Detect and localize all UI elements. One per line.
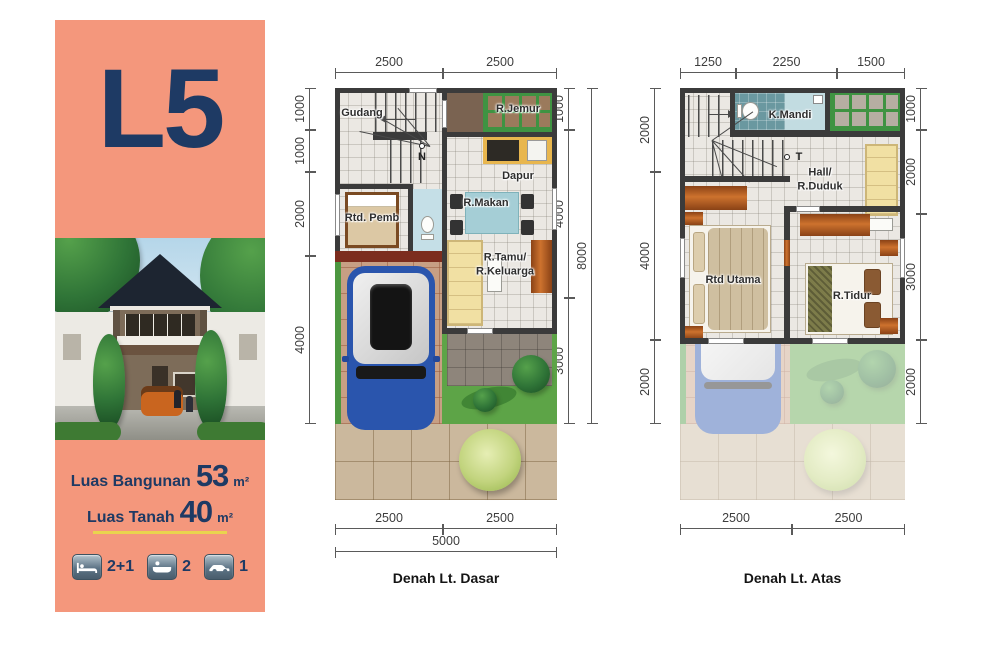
sink (527, 140, 547, 161)
dim-left: 4000 (309, 256, 310, 424)
dim-left: 1000 (309, 130, 310, 172)
spec-label: Luas Bangunan (71, 473, 191, 491)
window (409, 88, 437, 93)
divider (93, 531, 227, 534)
tree-icon (473, 388, 497, 412)
door-opening (467, 328, 493, 334)
unit-label: L5 (55, 42, 265, 176)
spec-luas-tanah: Luas Tanah 40 m² (55, 494, 265, 530)
t-marker-icon (784, 154, 790, 160)
window (552, 188, 557, 230)
door-panel (784, 240, 790, 266)
sink (813, 95, 823, 104)
window (680, 238, 685, 278)
nightstand (880, 240, 898, 256)
dim-top: 1250 (680, 72, 736, 73)
bedroom-count: 2+1 (107, 558, 134, 576)
dim-left: 2000 (654, 88, 655, 172)
room-label: R.Jemur (496, 102, 540, 116)
room-label: Dapur (502, 169, 534, 183)
spec-value: 53 (196, 458, 228, 494)
dim-left: 2000 (654, 340, 655, 424)
car-icon (204, 554, 234, 580)
toilet-icon (421, 216, 434, 233)
window (708, 338, 744, 344)
dim-left: 2000 (309, 172, 310, 256)
room-label: R.Makan (463, 196, 508, 210)
window (335, 194, 340, 236)
cabinet (531, 240, 552, 293)
nightstand (880, 318, 898, 334)
sidebar-panel: L5 Luas Ban (55, 20, 265, 612)
spec-unit: m² (233, 474, 249, 489)
bush-icon (459, 429, 521, 491)
balcony (830, 93, 900, 131)
dim-right: 2000 (920, 340, 921, 424)
brochure-page: L5 Luas Ban (0, 0, 984, 660)
upper-floor-plan: 1250 2250 1500 2000 4000 2000 1000 2000 … (680, 88, 905, 500)
feature-list: 2+1 2 1 (55, 554, 265, 580)
wardrobe (800, 214, 870, 236)
dim-bottom: 2500 (680, 528, 792, 529)
wardrobe (684, 186, 747, 210)
front-wall (335, 251, 442, 262)
ground-floor-plan: 2500 2500 1000 1000 2000 4000 1000 4000 … (335, 88, 557, 500)
dim-bottom: 2500 (792, 528, 905, 529)
bath-icon (147, 554, 177, 580)
dim-right: 4000 (568, 130, 569, 298)
plan-drawing: N (335, 88, 557, 500)
stairs (375, 93, 447, 132)
chair (521, 220, 534, 235)
plan-drawing: T (680, 88, 905, 500)
dim-left: 1000 (309, 88, 310, 130)
roof (98, 254, 222, 308)
spec-unit: m² (217, 510, 233, 525)
stair-arrow (385, 119, 415, 120)
person (186, 396, 193, 412)
window (900, 238, 905, 278)
room-label: Rtd. Pemb (345, 211, 399, 225)
service-floor (447, 93, 483, 132)
dim-right: 3000 (920, 214, 921, 340)
dim-right: 2000 (920, 130, 921, 214)
dim-right-total: 8000 (591, 88, 592, 424)
spec-value: 40 (180, 494, 212, 530)
dim-top: 2500 (335, 72, 443, 73)
coffee-table (869, 218, 893, 231)
door-opening (796, 206, 820, 212)
lower-level-fade (680, 340, 905, 500)
dim-bottom: 2500 (443, 528, 557, 529)
room-label: Hall/ R.Duduk (797, 166, 842, 195)
dim-bottom: 2500 (335, 528, 443, 529)
stair-arrow (708, 114, 730, 115)
spec-label: Luas Tanah (87, 509, 175, 527)
tree-icon (512, 355, 550, 393)
chair (521, 194, 534, 209)
dim-left: 4000 (654, 172, 655, 340)
hedge (335, 262, 341, 424)
conifer-icon (93, 334, 125, 428)
room-label: Rtd Utama (705, 273, 760, 287)
bathroom-count: 2 (182, 558, 191, 576)
feature-carport: 1 (204, 554, 248, 580)
room-label: Gudang (341, 106, 383, 120)
dim-top: 2250 (736, 72, 837, 73)
spec-luas-bangunan: Luas Bangunan 53 m² (55, 458, 265, 494)
dim-bottom-total: 5000 (335, 551, 557, 552)
room-label: R.Tidur (833, 289, 871, 303)
feature-bedrooms: 2+1 (72, 554, 134, 580)
plan-title: Denah Lt. Dasar (335, 570, 557, 586)
car (347, 266, 435, 430)
street-paving (335, 424, 557, 500)
t-label: T (796, 151, 803, 163)
toilet-icon (421, 234, 434, 240)
dim-top: 1500 (837, 72, 905, 73)
stove (487, 140, 519, 161)
person (174, 390, 181, 408)
north-marker-icon (419, 143, 425, 149)
dim-top: 2500 (443, 72, 557, 73)
chair (450, 194, 463, 209)
feature-bathrooms: 2 (147, 554, 191, 580)
carport-count: 1 (239, 558, 248, 576)
chair (450, 220, 463, 235)
dim-right: 1000 (920, 88, 921, 130)
house-photo (55, 238, 265, 440)
north-label: N (418, 151, 426, 163)
window (812, 338, 848, 344)
bed-icon (72, 554, 102, 580)
plan-title: Denah Lt. Atas (680, 570, 905, 586)
nightstand (683, 212, 703, 225)
room-label: K.Mandi (769, 108, 812, 122)
door-opening (442, 100, 447, 128)
dim-right: 3000 (568, 298, 569, 424)
dim-right: 1000 (568, 88, 569, 130)
room-label: R.Tamu/ R.Keluarga (476, 251, 534, 280)
stairs (688, 95, 728, 137)
conifer-icon (195, 330, 227, 428)
